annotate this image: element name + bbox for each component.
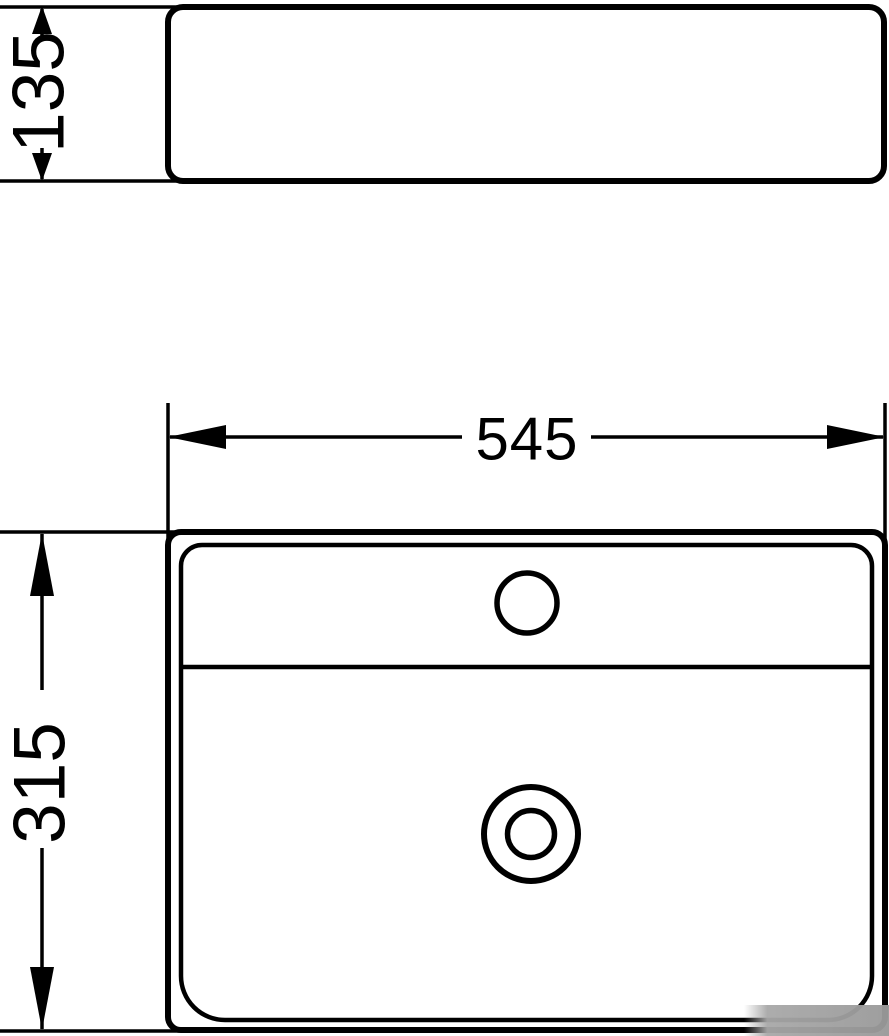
- drain-outer-ring: [484, 787, 578, 881]
- width-arrow-left-icon: [168, 425, 226, 449]
- width-arrow-right-icon: [827, 425, 885, 449]
- side-view: [168, 7, 884, 181]
- height-dimension-label: 135: [0, 31, 80, 153]
- plan-view-outline: [168, 532, 885, 1030]
- depth-arrow-down-icon: [30, 967, 54, 1030]
- width-dimension: 545: [168, 403, 885, 562]
- basin-rim-outline: [181, 545, 872, 1020]
- technical-drawing-page: 135 545 315: [0, 0, 889, 1036]
- drain-inner-ring: [508, 811, 555, 858]
- height-arrow-down-icon: [32, 153, 52, 181]
- washbasin-dimension-drawing: 135 545 315: [0, 0, 889, 1036]
- watermark-shape: [744, 1005, 889, 1036]
- depth-dimension: 315: [0, 532, 262, 1031]
- height-arrow-up-icon: [32, 6, 52, 34]
- side-view-outline: [168, 7, 884, 181]
- faucet-hole: [497, 573, 557, 633]
- depth-dimension-label: 315: [0, 722, 81, 844]
- width-dimension-label: 545: [475, 406, 578, 473]
- depth-arrow-up-icon: [30, 533, 54, 596]
- height-dimension: 135: [0, 6, 187, 181]
- watermark: [744, 1005, 889, 1036]
- plan-view: [168, 532, 885, 1030]
